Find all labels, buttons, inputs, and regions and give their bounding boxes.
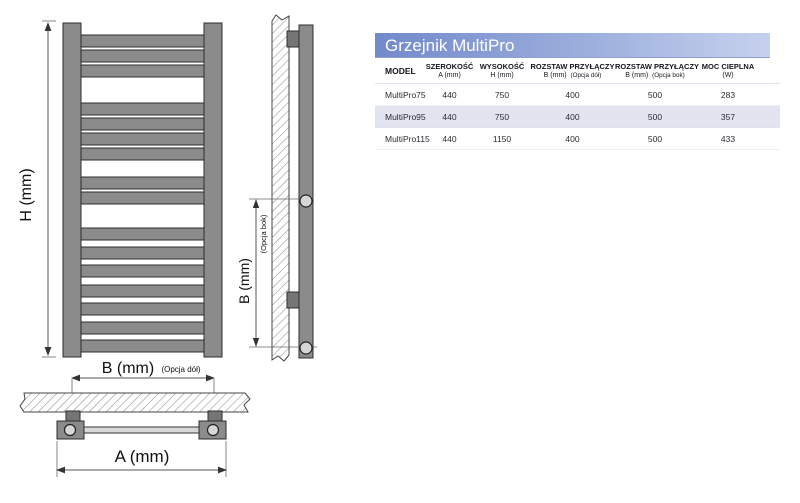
side-view: B (mm) (Opcja bok) — [236, 15, 317, 361]
b-side-dimension-note: (Opcja bok) — [259, 214, 268, 253]
front-view: H (mm) B (mm) (Opcja dół) — [18, 21, 222, 413]
h-dimension: H (mm) — [18, 21, 56, 357]
right-rail — [204, 23, 222, 357]
cell-spacing-bottom: 400 — [530, 134, 615, 144]
cell-height: 750 — [474, 112, 530, 122]
mounting-bracket-top — [287, 31, 300, 47]
cell-power: 433 — [695, 134, 761, 144]
cell-model: MultiPro95 — [375, 112, 425, 122]
spec-table: Grzejnik MultiPro MODEL SZEROKOŚĆ A (mm)… — [375, 33, 780, 150]
table-title: Grzejnik MultiPro — [375, 33, 770, 58]
pipe-stub-left — [66, 411, 80, 422]
b-bottom-dimension-label: B (mm) — [102, 360, 154, 377]
radiator-side-profile — [299, 25, 313, 358]
b-side-dimension-label: B (mm) — [236, 258, 252, 304]
cell-spacing-side: 500 — [615, 134, 695, 144]
connecting-pipe — [84, 427, 200, 433]
a-dimension-label: A (mm) — [115, 447, 170, 466]
cell-model: MultiPro75 — [375, 90, 425, 100]
wall-strip — [20, 393, 250, 412]
table-row: MultiPro75 440 750 400 500 283 — [375, 84, 780, 106]
cell-width: 440 — [425, 90, 474, 100]
pipe-stub-right — [208, 411, 222, 422]
cell-width: 440 — [425, 134, 474, 144]
cell-model: MultiPro115 — [375, 134, 425, 144]
col-header-spacing-side: ROZSTAW PRZYŁĄCZY B (mm) (Opcja bok) — [615, 62, 695, 79]
cell-spacing-side: 500 — [615, 112, 695, 122]
cell-height: 750 — [474, 90, 530, 100]
col-header-power: MOC CIEPLNA (W) — [695, 62, 761, 79]
col-header-width: SZEROKOŚĆ A (mm) — [425, 62, 474, 79]
radiator-rungs — [81, 35, 204, 352]
cell-width: 440 — [425, 112, 474, 122]
cell-spacing-bottom: 400 — [530, 112, 615, 122]
col-header-model: MODEL — [375, 66, 425, 76]
cell-power: 283 — [695, 90, 761, 100]
h-dimension-label: H (mm) — [18, 168, 35, 221]
cell-power: 357 — [695, 112, 761, 122]
mounting-bracket-bottom — [287, 292, 300, 308]
valve-port-right — [208, 425, 219, 436]
b-bottom-dimension-note: (Opcja dół) — [161, 365, 200, 374]
product-spec-sheet: H (mm) B (mm) (Opcja dół) — [0, 0, 800, 503]
side-connection-top — [300, 195, 312, 207]
left-rail — [63, 23, 81, 357]
table-header-row: MODEL SZEROKOŚĆ A (mm) WYSOKOŚĆ H (mm) R… — [375, 58, 780, 84]
cell-spacing-side: 500 — [615, 90, 695, 100]
side-connection-bottom — [300, 342, 312, 354]
valve-port-left — [65, 425, 76, 436]
bottom-view: A (mm) — [20, 393, 250, 477]
col-header-spacing-bottom: ROZSTAW PRZYŁĄCZY B (mm) (Opcja dół) — [530, 62, 615, 79]
col-header-height: WYSOKOŚĆ H (mm) — [474, 62, 530, 79]
technical-drawing: H (mm) B (mm) (Opcja dół) — [0, 0, 370, 503]
table-row: MultiPro95 440 750 400 500 357 — [375, 106, 780, 128]
a-dimension: A (mm) — [56, 441, 227, 477]
cell-height: 1150 — [474, 134, 530, 144]
table-row: MultiPro115 440 1150 400 500 433 — [375, 128, 780, 150]
cell-spacing-bottom: 400 — [530, 90, 615, 100]
wall-section — [272, 15, 289, 361]
